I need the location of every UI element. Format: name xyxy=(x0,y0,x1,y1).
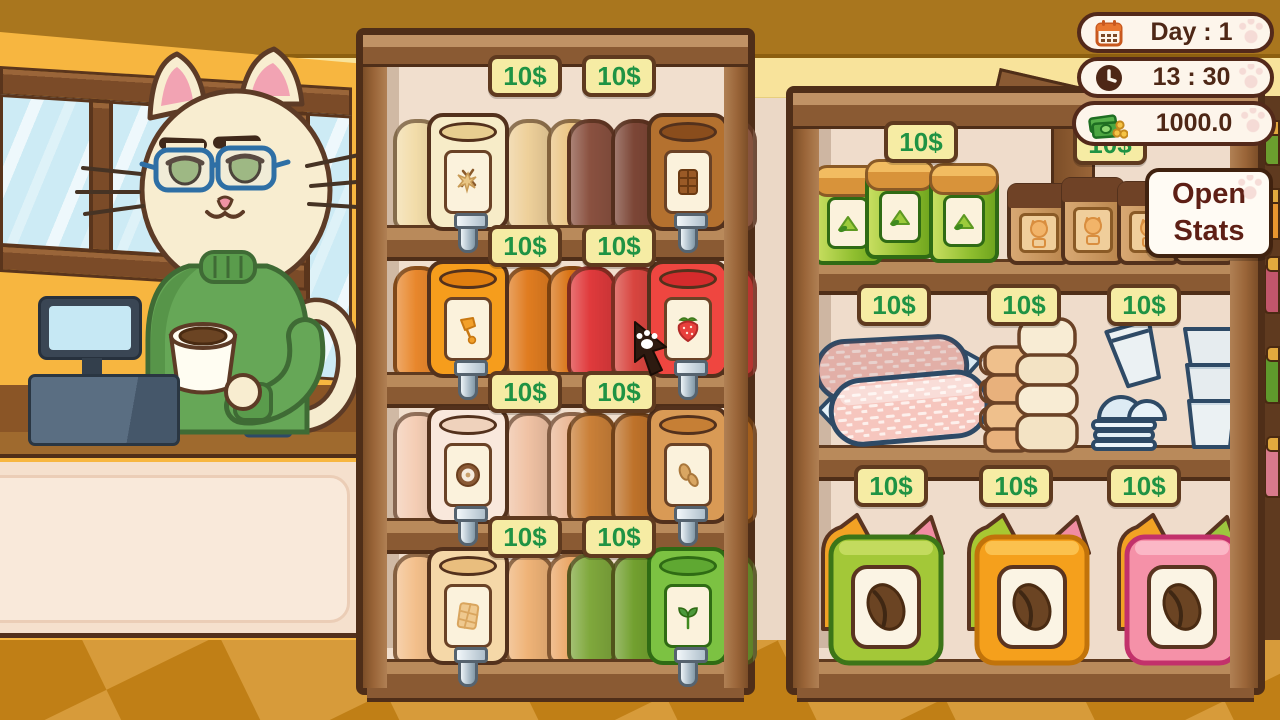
dispenser-label xyxy=(444,443,492,507)
price-tag: 10$ xyxy=(854,465,928,507)
calendar-icon xyxy=(1093,17,1125,49)
dispenser-opening xyxy=(659,556,717,576)
price-tag: 10$ xyxy=(582,55,656,97)
day-label: Day : 1 xyxy=(1125,18,1258,47)
register-screen xyxy=(49,306,131,350)
dispenser-tap[interactable] xyxy=(458,653,478,687)
dispenser-tap[interactable] xyxy=(678,512,698,546)
counter-panel-inset xyxy=(0,475,350,623)
open-stats-label: Open Stats xyxy=(1149,176,1269,250)
dispenser-almond[interactable] xyxy=(647,406,729,524)
mug-stacks[interactable] xyxy=(979,311,1079,453)
shelf-post xyxy=(793,93,819,688)
price-tag: 10$ xyxy=(582,225,656,267)
cat-paw-hand xyxy=(226,375,260,409)
vanilla-icon xyxy=(453,165,483,199)
syrup-bottle[interactable] xyxy=(567,412,617,524)
dispenser-label xyxy=(664,584,712,648)
price-tag: 10$ xyxy=(582,516,656,558)
cat-face-icon xyxy=(1078,213,1108,247)
plastic-cups-and-lids[interactable] xyxy=(1089,307,1245,453)
dispenser-opening xyxy=(439,269,497,289)
paper-cup-packs[interactable] xyxy=(803,333,999,455)
price-tag: 10$ xyxy=(488,516,562,558)
price-tag: 10$ xyxy=(488,225,562,267)
open-stats-button[interactable]: Open Stats xyxy=(1145,168,1273,258)
dispenser-honey[interactable] xyxy=(427,260,509,378)
coffee xyxy=(180,328,226,344)
tea-canister xyxy=(1263,444,1280,498)
money-icon xyxy=(1088,107,1128,141)
cat-nose xyxy=(218,197,232,209)
dispenser-matcha[interactable] xyxy=(647,547,729,665)
day-indicator: Day : 1 xyxy=(1077,12,1274,53)
dispenser-label xyxy=(444,297,492,361)
syrup-bottle[interactable] xyxy=(567,119,617,231)
matcha-leaf-icon xyxy=(835,210,861,236)
dispenser-label xyxy=(444,150,492,214)
cat-food-jar[interactable] xyxy=(1061,177,1125,265)
syrup-bottle[interactable] xyxy=(567,266,617,378)
paw-cursor xyxy=(632,320,678,378)
syrup-bottle[interactable] xyxy=(567,553,617,665)
dispenser-tap[interactable] xyxy=(678,366,698,400)
syrup-shelf: 10$ 10$ xyxy=(356,28,755,695)
almond-icon xyxy=(673,459,703,491)
sprout-icon xyxy=(673,600,703,632)
clock-icon xyxy=(1093,62,1125,94)
dispenser-waffle[interactable] xyxy=(427,547,509,665)
clock-indicator: 13 : 30 xyxy=(1077,57,1274,98)
dispenser-opening xyxy=(439,556,497,576)
money-label: 1000.0 xyxy=(1128,109,1260,138)
dispenser-opening xyxy=(659,269,717,289)
matcha-leaf-icon xyxy=(887,204,913,230)
matcha-jar[interactable] xyxy=(929,175,999,263)
honey-icon xyxy=(453,312,483,346)
tea-canister xyxy=(1263,354,1280,404)
dispenser-label xyxy=(664,443,712,507)
dispenser-opening xyxy=(439,415,497,435)
shelf-post xyxy=(724,35,748,688)
chocolate-icon xyxy=(675,166,701,198)
dispenser-tap[interactable] xyxy=(678,219,698,253)
dispenser-tap[interactable] xyxy=(458,366,478,400)
coffee-bag-orange[interactable] xyxy=(961,509,1101,667)
dispenser-coconut[interactable] xyxy=(427,406,509,524)
dispenser-label xyxy=(664,150,712,214)
dispenser-tap[interactable] xyxy=(458,512,478,546)
shelf-post xyxy=(363,35,387,688)
waffle-icon xyxy=(455,600,481,632)
price-tag: 10$ xyxy=(884,121,958,163)
price-tag: 10$ xyxy=(488,55,562,97)
tea-canister xyxy=(1263,264,1280,314)
price-tag: 10$ xyxy=(1107,284,1181,326)
price-tag: 10$ xyxy=(987,284,1061,326)
matcha-jar[interactable] xyxy=(865,171,935,259)
price-tag: 10$ xyxy=(979,465,1053,507)
coconut-icon xyxy=(453,459,483,491)
dispenser-chocolate[interactable] xyxy=(647,113,729,231)
game-screen: 10$ 10$ xyxy=(0,0,1280,720)
cat-face-icon xyxy=(1024,216,1054,250)
dispenser-label xyxy=(444,584,492,648)
coffee-bag-green[interactable] xyxy=(815,509,955,667)
money-indicator: 1000.0 xyxy=(1072,101,1276,146)
register-monitor[interactable] xyxy=(38,296,142,360)
dispenser-opening xyxy=(439,122,497,142)
counter-front-panel xyxy=(0,462,366,638)
price-tag: 10$ xyxy=(488,371,562,413)
price-tag: 10$ xyxy=(857,284,931,326)
price-tag: 10$ xyxy=(1107,465,1181,507)
cash-register[interactable] xyxy=(28,374,180,446)
dispenser-vanilla[interactable] xyxy=(427,113,509,231)
matcha-leaf-icon xyxy=(951,208,977,234)
dispenser-tap[interactable] xyxy=(678,653,698,687)
dispenser-tap[interactable] xyxy=(458,219,478,253)
time-label: 13 : 30 xyxy=(1125,63,1258,92)
dispenser-opening xyxy=(659,415,717,435)
dispenser-opening xyxy=(659,122,717,142)
